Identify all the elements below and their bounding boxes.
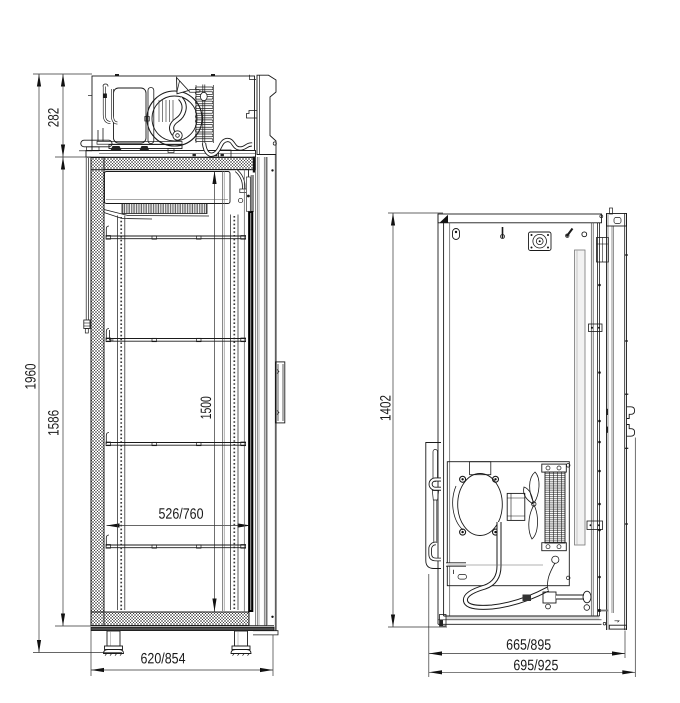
- svg-text:1960: 1960: [23, 364, 40, 390]
- svg-text:695/925: 695/925: [513, 657, 558, 674]
- svg-text:282: 282: [46, 108, 63, 128]
- svg-text:1586: 1586: [46, 410, 63, 436]
- svg-text:620/854: 620/854: [140, 650, 185, 667]
- svg-text:1500: 1500: [198, 396, 215, 419]
- svg-text:526/760: 526/760: [158, 506, 203, 523]
- svg-text:1402: 1402: [378, 395, 395, 421]
- svg-text:665/895: 665/895: [506, 637, 551, 654]
